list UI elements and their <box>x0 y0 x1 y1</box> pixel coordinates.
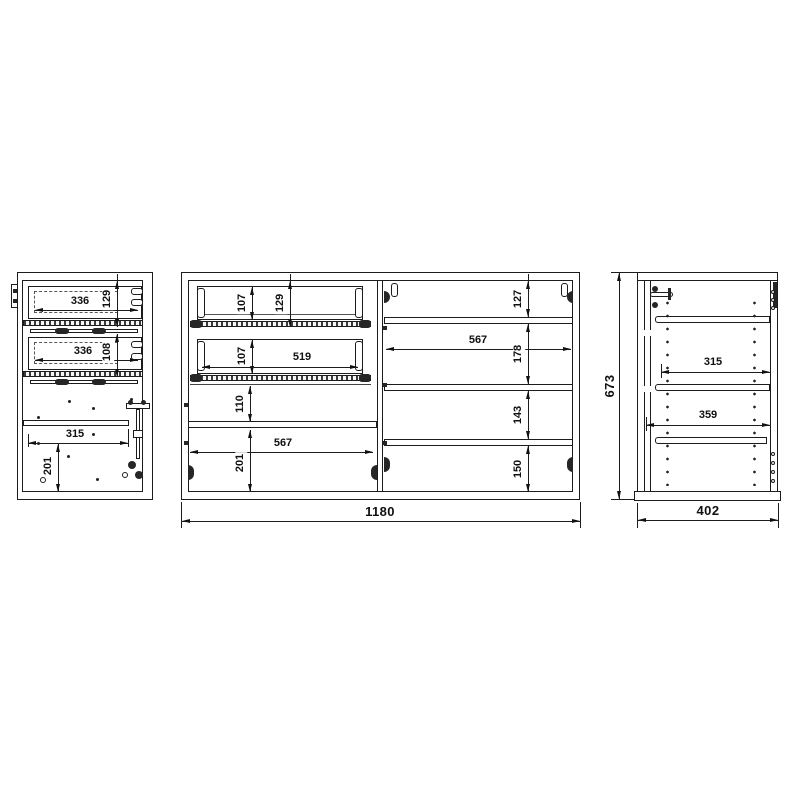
strut-coupler-icon <box>133 430 143 438</box>
left-view-drawer2-slide-rail <box>23 371 143 377</box>
screw-icon <box>771 306 775 310</box>
center-right-shelf-3 <box>384 439 573 446</box>
arrow-left-icon <box>638 518 646 522</box>
arrow-up-icon <box>250 287 254 295</box>
side-back-panel-line <box>770 281 771 491</box>
ext-line <box>181 502 182 528</box>
hinge-pin-icon <box>668 288 671 300</box>
runner-block-icon <box>55 379 69 385</box>
dim-label-center-drawer1-front-height: 129 <box>275 292 287 314</box>
side-bottom-panel <box>634 491 781 501</box>
arrow-up-icon <box>115 281 119 289</box>
hinge-flange-icon <box>652 302 658 308</box>
dim-label-center-drawer1-box-height: 107 <box>237 292 249 314</box>
center-left-shelf <box>188 421 377 428</box>
dim-label-left-drawer1-width: 336 <box>69 296 91 308</box>
dim-line <box>250 430 251 492</box>
side-top-panel-line <box>638 280 777 281</box>
dim-line <box>646 425 770 426</box>
arrow-up-icon <box>248 386 252 394</box>
drawer-bracket-icon <box>197 288 205 318</box>
center-drawer1-slide-rail <box>190 321 371 327</box>
arrow-down-icon <box>526 484 530 492</box>
screw-icon <box>122 472 128 478</box>
pin-hole-icon <box>67 455 70 458</box>
dim-label-center-left-shelf-width: 567 <box>272 438 294 450</box>
dim-label-lower-shelf-depth: 359 <box>697 410 719 422</box>
left-view-drawer2-runner <box>30 380 138 384</box>
runner-block-icon <box>55 328 69 334</box>
dim-label-center-right-gap-middle: 143 <box>513 404 525 426</box>
dim-label-center-drawer2-width: 519 <box>291 352 313 364</box>
arrow-left-icon <box>386 347 394 351</box>
arrow-right-icon <box>350 365 358 369</box>
drawer-bracket-icon <box>355 288 363 318</box>
hinge-cup-icon <box>128 461 136 469</box>
runner-block-icon <box>92 379 106 385</box>
dim-line <box>661 372 770 373</box>
arrow-left-icon <box>190 450 198 454</box>
center-right-shelf-2 <box>384 384 573 391</box>
center-right-shelf-1 <box>384 317 573 324</box>
arrow-right-icon <box>762 370 770 374</box>
pin-hole-icon <box>184 441 188 445</box>
arrow-left-icon <box>35 308 43 312</box>
left-view-shelf <box>23 420 129 426</box>
screw-icon <box>771 290 775 294</box>
side-shelf-3 <box>655 437 767 444</box>
pin-hole-icon <box>68 400 71 403</box>
hinge-mount-icon <box>773 282 777 308</box>
arrow-down-icon <box>115 319 119 327</box>
arrow-left-icon <box>202 365 210 369</box>
ext-line <box>637 503 638 528</box>
rail-end-icon <box>359 320 371 328</box>
arrow-up-icon <box>115 334 119 342</box>
dim-label-left-drawer1-height: 129 <box>102 288 114 310</box>
dim-label-left-drawer2-height: 108 <box>102 341 114 363</box>
shelf-pin-icon <box>383 441 387 445</box>
arrow-up-icon <box>56 444 60 452</box>
pin-hole-column <box>753 300 756 486</box>
arrow-down-icon <box>526 431 530 439</box>
dim-label-left-bottom-height: 201 <box>43 455 55 477</box>
arrow-down-icon <box>526 309 530 317</box>
arrow-right-icon <box>365 450 373 454</box>
arrow-left-icon <box>661 370 669 374</box>
arrow-left-icon <box>35 358 43 362</box>
left-view-drawer1-runner <box>30 329 138 333</box>
bracket-icon <box>131 353 143 360</box>
dim-line <box>35 310 138 311</box>
dim-label-upper-shelf-depth: 315 <box>702 357 724 369</box>
left-view-drawer1-slide-rail <box>23 320 143 326</box>
ext-line <box>611 272 637 273</box>
arrow-down-icon <box>526 376 530 384</box>
arrow-down-icon <box>250 312 254 320</box>
dim-label-left-drawer2-width: 336 <box>72 346 94 358</box>
pin-hole-icon <box>96 478 99 481</box>
ext-line <box>128 429 129 447</box>
bracket-icon <box>131 288 143 295</box>
dim-label-center-right-gap-upper: 178 <box>513 343 525 365</box>
arrow-down-icon <box>288 319 292 327</box>
arrow-left-icon <box>646 423 654 427</box>
screw-icon <box>13 299 17 303</box>
arrow-up-icon <box>526 324 530 332</box>
dim-label-center-gap: 110 <box>235 393 247 415</box>
arrow-right-icon <box>120 441 128 445</box>
runner-block-icon <box>92 328 106 334</box>
hinge-cup-icon <box>567 457 573 472</box>
arrow-up-icon <box>248 430 252 438</box>
pin-hole-column <box>666 300 669 486</box>
hinge-cup-icon <box>135 471 143 479</box>
dim-label-left-shelf-width: 315 <box>64 429 86 441</box>
center-drawer2-slide-rail <box>190 375 371 381</box>
foot-icon <box>40 477 46 483</box>
rail-end-icon <box>190 320 202 328</box>
door-hinge-icon <box>391 283 398 297</box>
screw-icon <box>141 400 146 405</box>
screw-icon <box>771 470 775 474</box>
arrow-up-icon <box>250 340 254 348</box>
arrow-down-icon <box>56 484 60 492</box>
dim-label-center-left-bottom-height: 201 <box>235 452 247 474</box>
dim-line <box>190 452 373 453</box>
dim-line <box>35 360 138 361</box>
left-view-hinge-plate-icon <box>11 284 18 308</box>
dim-line <box>637 520 778 521</box>
door-panel-joint <box>643 386 652 392</box>
dim-label-center-right-gap-lower: 150 <box>513 458 525 480</box>
arrow-up-icon <box>526 281 530 289</box>
dim-line <box>619 273 620 499</box>
arrow-right-icon <box>130 308 138 312</box>
dim-line <box>28 443 128 444</box>
arrow-left-icon <box>182 519 190 523</box>
arrow-down-icon <box>248 484 252 492</box>
arrow-down-icon <box>115 369 119 377</box>
pin-hole-icon <box>37 442 40 445</box>
pin-hole-icon <box>92 433 95 436</box>
screw-icon <box>771 461 775 465</box>
door-panel-joint <box>643 330 652 336</box>
arrow-up-icon <box>288 281 292 289</box>
arrow-right-icon <box>572 519 580 523</box>
arrow-up-icon <box>617 273 621 281</box>
runner-line <box>190 384 371 385</box>
dim-label-center-right-shelf-width: 567 <box>467 335 489 347</box>
bracket-icon <box>131 299 143 306</box>
screw-icon <box>771 298 775 302</box>
arrow-down-icon <box>617 491 621 499</box>
screw-icon <box>128 400 133 405</box>
hinge-cup-icon <box>567 291 573 303</box>
pin-hole-icon <box>37 416 40 419</box>
hinge-cup-icon <box>371 465 377 480</box>
screw-icon <box>13 289 17 293</box>
dim-line <box>202 367 358 368</box>
arrow-right-icon <box>762 423 770 427</box>
bracket-icon <box>131 341 143 348</box>
dim-label-center-right-top-gap: 127 <box>513 288 525 310</box>
arrow-up-icon <box>526 446 530 454</box>
dim-line <box>181 521 580 522</box>
shelf-pin-icon <box>383 383 387 387</box>
pin-hole-icon <box>92 407 95 410</box>
dim-label-center-drawer2-box-height: 107 <box>237 345 249 367</box>
shelf-pin-icon <box>383 326 387 330</box>
hinge-flange-icon <box>652 286 658 292</box>
rail-end-icon <box>190 374 202 382</box>
pin-hole-icon <box>184 403 188 407</box>
arrow-left-icon <box>28 441 36 445</box>
arrow-up-icon <box>526 391 530 399</box>
dim-line <box>528 324 529 384</box>
ext-line <box>580 502 581 528</box>
screw-icon <box>771 479 775 483</box>
dim-line <box>386 349 571 350</box>
technical-drawing-canvas: 336 129 336 108 315 201 <box>0 0 800 800</box>
center-drawer2-box <box>197 339 363 374</box>
dim-label-overall-height: 673 <box>603 373 617 400</box>
ext-line <box>778 503 779 528</box>
arrow-right-icon <box>563 347 571 351</box>
rail-end-icon <box>359 374 371 382</box>
screw-icon <box>771 452 775 456</box>
arrow-right-icon <box>770 518 778 522</box>
dim-label-overall-depth: 402 <box>695 504 722 518</box>
dim-label-overall-width: 1180 <box>363 505 397 519</box>
